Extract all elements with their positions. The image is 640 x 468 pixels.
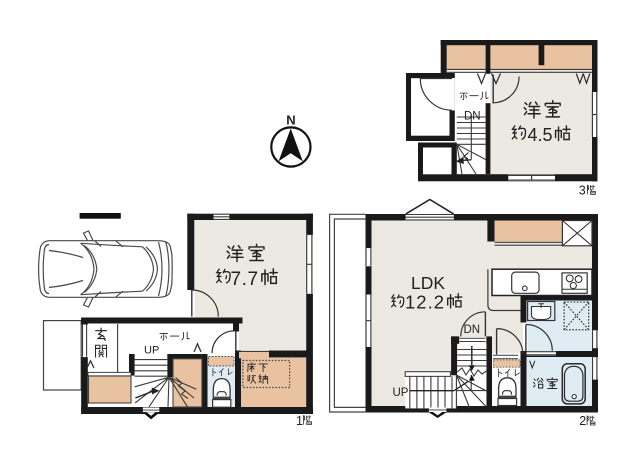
svg-text:UP: UP bbox=[393, 387, 409, 399]
svg-text:3: 3 bbox=[579, 184, 586, 198]
svg-text:N: N bbox=[286, 112, 295, 127]
svg-text:LDK: LDK bbox=[411, 273, 445, 293]
svg-text:12.2: 12.2 bbox=[405, 292, 445, 313]
svg-text:4.5: 4.5 bbox=[528, 125, 553, 145]
svg-text:DN: DN bbox=[464, 324, 481, 336]
svg-text:UP: UP bbox=[144, 345, 159, 357]
svg-text:1: 1 bbox=[296, 414, 303, 428]
svg-text:7.7: 7.7 bbox=[231, 269, 259, 290]
svg-text:DN: DN bbox=[464, 111, 481, 123]
svg-text:2: 2 bbox=[579, 414, 586, 428]
